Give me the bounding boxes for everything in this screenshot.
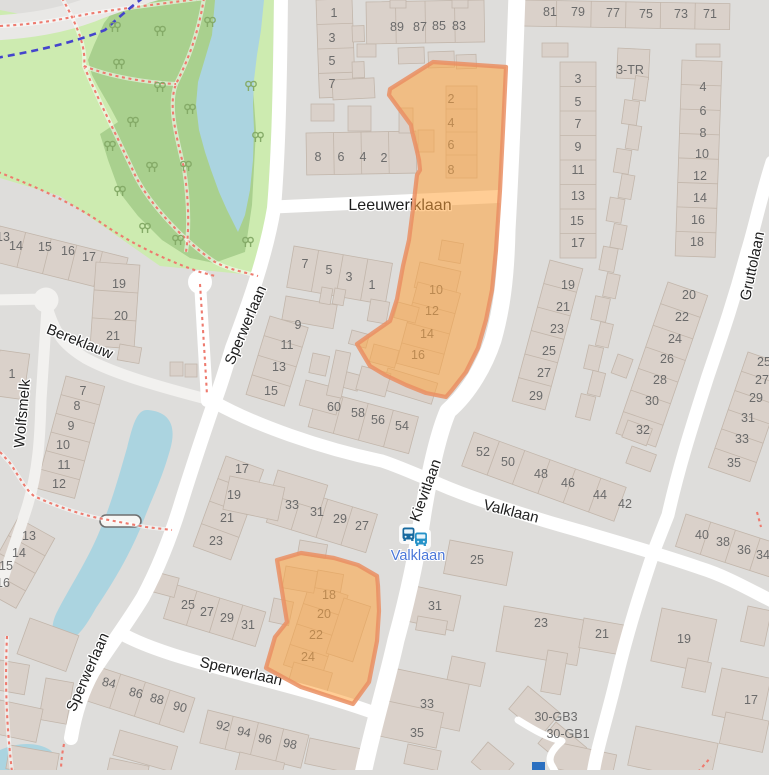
svg-text:17: 17 — [571, 236, 585, 250]
svg-text:32: 32 — [636, 423, 650, 437]
svg-text:15: 15 — [0, 559, 13, 573]
svg-text:14: 14 — [693, 191, 707, 205]
svg-text:31: 31 — [310, 505, 324, 519]
svg-text:27: 27 — [200, 605, 214, 619]
svg-text:13: 13 — [571, 189, 585, 203]
svg-text:13: 13 — [272, 360, 286, 374]
svg-text:40: 40 — [695, 528, 709, 542]
svg-text:1: 1 — [331, 6, 338, 20]
svg-text:8: 8 — [74, 399, 81, 413]
svg-text:14: 14 — [9, 239, 23, 253]
svg-text:23: 23 — [209, 534, 223, 548]
svg-text:12: 12 — [52, 477, 66, 491]
svg-text:25: 25 — [181, 598, 195, 612]
svg-text:30: 30 — [645, 394, 659, 408]
svg-text:33: 33 — [285, 498, 299, 512]
svg-text:27: 27 — [355, 519, 369, 533]
svg-text:24: 24 — [668, 332, 682, 346]
svg-text:7: 7 — [575, 117, 582, 131]
svg-text:35: 35 — [410, 726, 424, 740]
svg-text:81: 81 — [543, 5, 557, 19]
svg-text:2: 2 — [381, 151, 388, 165]
svg-text:85: 85 — [432, 19, 446, 33]
svg-text:92: 92 — [215, 718, 232, 735]
svg-text:9: 9 — [575, 140, 582, 154]
svg-text:22: 22 — [675, 310, 689, 324]
svg-text:7: 7 — [329, 77, 336, 91]
svg-text:20: 20 — [682, 288, 696, 302]
svg-text:29: 29 — [529, 389, 543, 403]
svg-text:31: 31 — [428, 599, 442, 613]
svg-text:4: 4 — [700, 80, 707, 94]
svg-text:16: 16 — [691, 213, 705, 227]
svg-text:50: 50 — [501, 455, 515, 469]
svg-text:27: 27 — [537, 366, 551, 380]
svg-text:16: 16 — [61, 244, 75, 258]
svg-text:33: 33 — [420, 697, 434, 711]
svg-text:9: 9 — [295, 318, 302, 332]
svg-text:38: 38 — [716, 535, 730, 549]
svg-text:5: 5 — [326, 263, 333, 277]
svg-text:89: 89 — [390, 20, 404, 34]
svg-text:25: 25 — [542, 344, 556, 358]
svg-text:77: 77 — [606, 6, 620, 20]
svg-text:79: 79 — [571, 5, 585, 19]
svg-text:75: 75 — [639, 7, 653, 21]
svg-text:30-GB3: 30-GB3 — [534, 710, 577, 724]
svg-text:21: 21 — [556, 300, 570, 314]
svg-text:29: 29 — [220, 611, 234, 625]
svg-text:19: 19 — [677, 632, 691, 646]
svg-text:3: 3 — [346, 270, 353, 284]
svg-text:19: 19 — [227, 488, 241, 502]
svg-text:11: 11 — [281, 338, 294, 352]
svg-text:54: 54 — [395, 419, 409, 433]
svg-text:3-TR: 3-TR — [616, 63, 644, 77]
svg-text:19: 19 — [561, 278, 575, 292]
svg-text:42: 42 — [618, 497, 632, 511]
svg-text:25: 25 — [470, 553, 484, 567]
svg-text:15: 15 — [264, 384, 278, 398]
svg-text:11: 11 — [572, 163, 585, 177]
svg-text:8: 8 — [700, 126, 707, 140]
svg-text:13: 13 — [22, 529, 36, 543]
svg-text:16: 16 — [0, 576, 10, 590]
svg-text:3: 3 — [575, 72, 582, 86]
svg-text:23: 23 — [550, 322, 564, 336]
svg-text:98: 98 — [282, 736, 299, 753]
svg-text:34: 34 — [756, 548, 769, 562]
svg-text:17: 17 — [235, 462, 249, 476]
svg-text:8: 8 — [315, 150, 322, 164]
svg-text:5: 5 — [575, 95, 582, 109]
svg-text:25: 25 — [757, 355, 769, 369]
svg-text:10: 10 — [56, 438, 70, 452]
svg-text:14: 14 — [12, 546, 26, 560]
svg-text:18: 18 — [690, 235, 704, 249]
svg-text:44: 44 — [593, 488, 607, 502]
svg-text:19: 19 — [112, 277, 126, 291]
svg-text:1: 1 — [369, 278, 376, 292]
svg-text:20: 20 — [114, 309, 128, 323]
svg-text:30-GB1: 30-GB1 — [546, 727, 589, 741]
svg-text:29: 29 — [749, 391, 763, 405]
svg-text:7: 7 — [302, 257, 309, 271]
svg-text:71: 71 — [703, 7, 717, 21]
svg-text:6: 6 — [338, 150, 345, 164]
svg-text:60: 60 — [327, 400, 341, 414]
svg-text:12: 12 — [693, 169, 707, 183]
svg-text:15: 15 — [570, 214, 584, 228]
svg-text:46: 46 — [561, 476, 575, 490]
svg-text:9: 9 — [68, 419, 75, 433]
svg-text:4: 4 — [360, 150, 367, 164]
svg-text:31: 31 — [741, 411, 755, 425]
svg-text:29: 29 — [333, 512, 347, 526]
svg-text:94: 94 — [236, 724, 253, 741]
svg-text:23: 23 — [534, 616, 548, 630]
svg-text:6: 6 — [700, 104, 707, 118]
svg-text:11: 11 — [58, 458, 71, 472]
svg-text:36: 36 — [737, 543, 751, 557]
svg-text:15: 15 — [38, 240, 52, 254]
svg-text:35: 35 — [727, 456, 741, 470]
svg-text:31: 31 — [241, 618, 255, 632]
svg-text:73: 73 — [674, 7, 688, 21]
svg-text:27: 27 — [755, 373, 769, 387]
svg-text:1: 1 — [9, 367, 16, 381]
svg-text:10: 10 — [695, 147, 709, 161]
svg-text:48: 48 — [534, 467, 548, 481]
svg-text:21: 21 — [106, 329, 120, 343]
svg-text:3: 3 — [329, 31, 336, 45]
svg-text:83: 83 — [452, 19, 466, 33]
svg-text:21: 21 — [220, 511, 234, 525]
svg-text:28: 28 — [653, 373, 667, 387]
svg-text:5: 5 — [329, 54, 336, 68]
svg-text:26: 26 — [660, 352, 674, 366]
svg-text:56: 56 — [371, 413, 385, 427]
svg-text:17: 17 — [82, 250, 96, 264]
svg-text:58: 58 — [351, 406, 365, 420]
svg-text:33: 33 — [735, 432, 749, 446]
svg-text:52: 52 — [476, 445, 490, 459]
svg-text:17: 17 — [744, 693, 758, 707]
svg-text:96: 96 — [257, 731, 274, 748]
svg-text:21: 21 — [595, 627, 609, 641]
svg-text:7: 7 — [80, 384, 87, 398]
svg-text:87: 87 — [413, 20, 427, 34]
svg-text:Valklaan: Valklaan — [391, 548, 446, 564]
